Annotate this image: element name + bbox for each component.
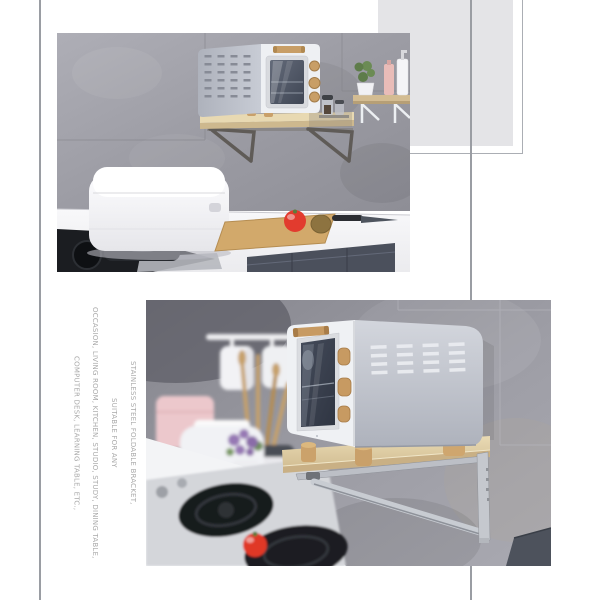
- oven-wood-handle: [273, 46, 305, 53]
- marketing-line-4: COMPUTER DESK, LEARNING TABLE, ETC.,: [66, 300, 85, 566]
- marketing-text: STAINLESS STEEL FOLDABLE BRACKET, SUITAB…: [58, 300, 142, 566]
- white-bottle: [397, 59, 408, 95]
- marketing-line-2: SUITABLE FOR ANY: [104, 300, 123, 566]
- marketing-line-1: STAINLESS STEEL FOLDABLE BRACKET,: [123, 300, 142, 566]
- toaster-oven: [198, 44, 320, 117]
- oven-knobs: [338, 348, 351, 422]
- cooker-button: [209, 203, 221, 212]
- knife-handle: [332, 215, 363, 221]
- photo-bracket-closeup: [146, 300, 551, 566]
- oven-body: [355, 320, 483, 447]
- stove-knob: [156, 486, 168, 498]
- stove-knob: [177, 478, 187, 488]
- photo-kitchen-overview-art: [57, 33, 410, 272]
- bracket-wall-bar: [477, 452, 490, 542]
- pink-bottle: [384, 64, 394, 95]
- small-wood-shelf: [353, 95, 410, 101]
- rice-cooker: [87, 167, 231, 260]
- oven-knobs: [309, 61, 320, 102]
- product-gallery-page: STAINLESS STEEL FOLDABLE BRACKET, SUITAB…: [0, 0, 600, 600]
- photo-bracket-closeup-art: [146, 300, 551, 566]
- tomato: [243, 533, 267, 557]
- kiwi: [311, 215, 331, 233]
- decor-vertical-line-left: [39, 0, 41, 600]
- photo-kitchen-overview: [57, 33, 410, 272]
- marketing-line-3: OCCASION, LIVING ROOM, KITCHEN, STUDIO, …: [85, 300, 104, 566]
